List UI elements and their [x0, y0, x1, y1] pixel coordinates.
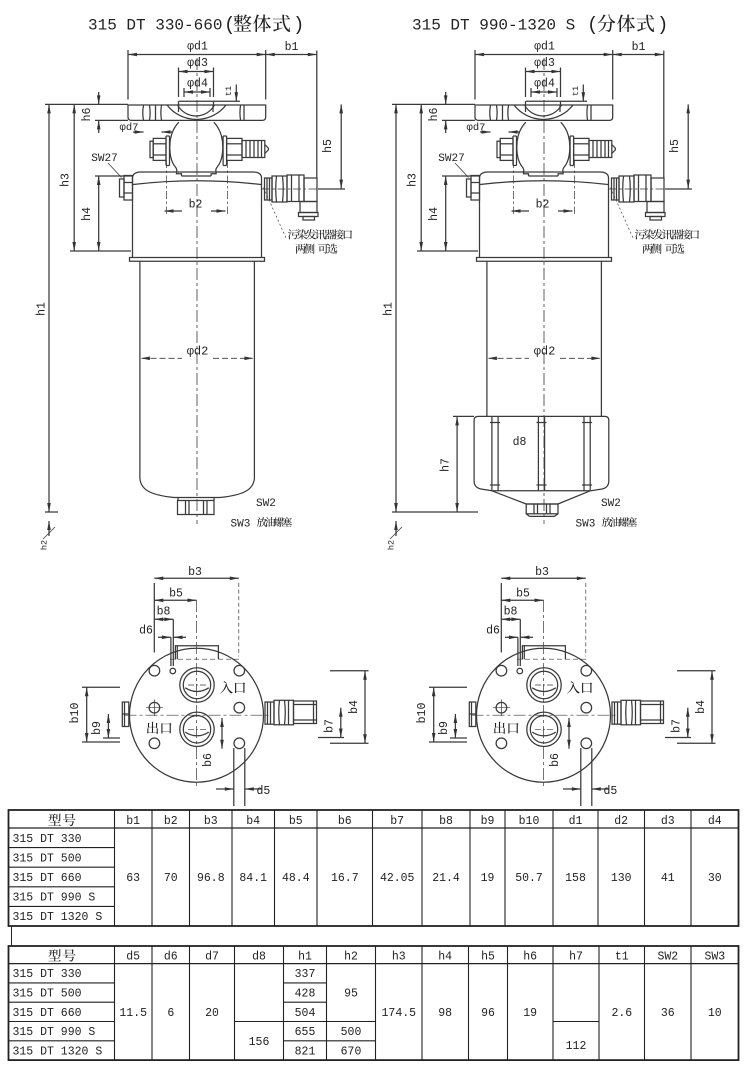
svg-text:d6: d6	[139, 625, 153, 638]
svg-text:b8: b8	[157, 606, 171, 619]
svg-text:315 DT 500: 315 DT 500	[13, 852, 82, 865]
svg-text:d5: d5	[126, 951, 140, 964]
svg-text:b3: b3	[535, 566, 549, 579]
svg-text:h1: h1	[383, 302, 396, 316]
svg-text:2.6: 2.6	[611, 1007, 632, 1020]
svg-text:SW3: SW3	[576, 519, 596, 531]
svg-text:63: 63	[126, 872, 140, 885]
svg-text:h1: h1	[298, 951, 312, 964]
svg-text:): )	[293, 14, 304, 36]
svg-text:b2: b2	[536, 199, 550, 212]
svg-text:φd3: φd3	[534, 57, 555, 70]
svg-text:h3: h3	[392, 951, 406, 964]
svg-text:b5: b5	[289, 815, 303, 828]
svg-text:d3: d3	[661, 815, 675, 828]
svg-text:d5: d5	[604, 785, 618, 798]
svg-text:315 DT 1320 S: 315 DT 1320 S	[13, 1045, 103, 1058]
svg-text:h5: h5	[322, 139, 335, 153]
svg-text:d4: d4	[708, 815, 722, 828]
svg-text:φd1: φd1	[187, 41, 208, 54]
svg-text:21.4: 21.4	[432, 872, 460, 885]
svg-text:16.7: 16.7	[331, 872, 359, 885]
svg-text:315 DT 660: 315 DT 660	[13, 872, 82, 885]
svg-text:48.4: 48.4	[282, 872, 310, 885]
svg-text:h6: h6	[428, 108, 441, 122]
svg-text:315 DT 990 S: 315 DT 990 S	[13, 892, 96, 905]
svg-text:d6: d6	[164, 951, 178, 964]
svg-text:h7: h7	[440, 458, 453, 472]
svg-text:t1: t1	[224, 86, 234, 96]
svg-text:h3: h3	[60, 173, 73, 187]
svg-text:φd2: φd2	[187, 345, 209, 359]
svg-text:b6: b6	[202, 753, 215, 767]
svg-text:h2: h2	[344, 951, 358, 964]
svg-text:h5: h5	[481, 951, 495, 964]
svg-text:315 DT 1320 S: 315 DT 1320 S	[13, 911, 103, 924]
svg-text:315 DT 990 S: 315 DT 990 S	[13, 1026, 96, 1039]
svg-text:315 DT 330: 315 DT 330	[13, 833, 82, 846]
svg-text:φd2: φd2	[534, 345, 556, 359]
svg-text:95: 95	[344, 988, 358, 1001]
svg-text:6: 6	[167, 1007, 174, 1020]
svg-text:d6: d6	[486, 625, 500, 638]
svg-text:φd3: φd3	[187, 57, 208, 70]
svg-text:h2: h2	[40, 540, 50, 550]
svg-text:50.7: 50.7	[515, 872, 543, 885]
svg-text:20: 20	[205, 1007, 219, 1020]
svg-text:h5: h5	[669, 139, 682, 153]
svg-text:SW3: SW3	[231, 519, 251, 531]
svg-text:b1: b1	[126, 815, 140, 828]
svg-text:b9: b9	[438, 721, 451, 735]
svg-text:b9: b9	[481, 815, 495, 828]
svg-text:130: 130	[611, 872, 632, 885]
svg-text:h4: h4	[428, 207, 441, 221]
svg-text:b4: b4	[246, 815, 260, 828]
svg-text:t1: t1	[615, 951, 629, 964]
svg-text:315 DT 330: 315 DT 330	[13, 968, 82, 981]
svg-text:b9: b9	[91, 721, 104, 735]
svg-text:(: (	[224, 14, 235, 36]
svg-text:φd4: φd4	[534, 78, 555, 91]
svg-text:SW2: SW2	[657, 951, 678, 964]
svg-text:315 DT 330-660: 315 DT 330-660	[88, 17, 222, 35]
svg-text:156: 156	[249, 1036, 270, 1049]
svg-text:670: 670	[341, 1046, 362, 1059]
svg-text:112: 112	[566, 1040, 587, 1053]
svg-text:): )	[657, 14, 668, 36]
svg-text:158: 158	[565, 872, 586, 885]
svg-text:655: 655	[295, 1026, 316, 1039]
svg-text:821: 821	[295, 1045, 316, 1058]
svg-text:11.5: 11.5	[119, 1007, 147, 1020]
svg-text:h7: h7	[569, 951, 583, 964]
svg-text:h1: h1	[36, 302, 49, 316]
svg-text:315 DT 500: 315 DT 500	[13, 988, 82, 1001]
svg-text:b10: b10	[416, 703, 429, 724]
svg-text:h4: h4	[81, 207, 94, 221]
svg-text:d5: d5	[257, 785, 271, 798]
svg-text:315 DT 990-1320 S: 315 DT 990-1320 S	[412, 17, 575, 35]
svg-text:d1: d1	[569, 815, 583, 828]
svg-text:41: 41	[661, 872, 675, 885]
svg-text:(: (	[587, 14, 598, 36]
svg-text:b7: b7	[324, 719, 337, 733]
svg-text:d8: d8	[252, 951, 266, 964]
svg-text:337: 337	[295, 968, 316, 981]
svg-text:315 DT 660: 315 DT 660	[13, 1007, 82, 1020]
svg-text:h6: h6	[523, 951, 537, 964]
svg-text:504: 504	[295, 1007, 316, 1020]
svg-text:h3: h3	[407, 173, 420, 187]
svg-text:t1: t1	[571, 86, 581, 96]
svg-text:SW2: SW2	[601, 498, 621, 510]
svg-text:98: 98	[438, 1007, 452, 1020]
svg-text:10: 10	[708, 1007, 722, 1020]
svg-text:70: 70	[164, 872, 178, 885]
svg-text:b6: b6	[549, 753, 562, 767]
svg-text:b2: b2	[189, 199, 203, 212]
svg-text:b3: b3	[188, 566, 202, 579]
svg-text:d8: d8	[513, 436, 527, 449]
svg-text:d2: d2	[614, 815, 628, 828]
svg-text:b6: b6	[338, 815, 352, 828]
svg-text:19: 19	[523, 1007, 537, 1020]
svg-text:φd4: φd4	[187, 78, 208, 91]
svg-text:36: 36	[661, 1007, 675, 1020]
svg-text:b1: b1	[285, 41, 299, 54]
svg-text:428: 428	[295, 988, 316, 1001]
svg-text:b3: b3	[204, 815, 218, 828]
svg-text:b5: b5	[169, 588, 183, 601]
svg-text:h6: h6	[81, 108, 94, 122]
svg-text:SW27: SW27	[91, 153, 117, 165]
svg-text:84.1: 84.1	[239, 872, 267, 885]
svg-text:96.8: 96.8	[197, 872, 225, 885]
svg-text:SW2: SW2	[256, 498, 276, 510]
svg-text:d7: d7	[205, 951, 219, 964]
svg-text:b1: b1	[632, 41, 646, 54]
svg-text:SW3: SW3	[704, 951, 725, 964]
svg-text:b7: b7	[390, 815, 404, 828]
svg-text:h2: h2	[387, 540, 397, 550]
svg-text:b4: b4	[695, 700, 708, 714]
svg-text:b2: b2	[164, 815, 178, 828]
svg-text:SW27: SW27	[438, 153, 464, 165]
svg-text:b8: b8	[439, 815, 453, 828]
svg-text:φd1: φd1	[534, 41, 555, 54]
svg-text:96: 96	[481, 1007, 495, 1020]
svg-text:b10: b10	[519, 815, 540, 828]
svg-text:h4: h4	[438, 951, 452, 964]
svg-text:174.5: 174.5	[382, 1007, 417, 1020]
svg-text:42.05: 42.05	[380, 872, 415, 885]
svg-text:b5: b5	[516, 588, 530, 601]
svg-text:b4: b4	[348, 700, 361, 714]
svg-text:19: 19	[481, 872, 495, 885]
svg-text:30: 30	[708, 872, 722, 885]
svg-text:b10: b10	[69, 703, 82, 724]
svg-text:b7: b7	[671, 719, 684, 733]
svg-text:b8: b8	[504, 606, 518, 619]
svg-text:500: 500	[341, 1026, 362, 1039]
